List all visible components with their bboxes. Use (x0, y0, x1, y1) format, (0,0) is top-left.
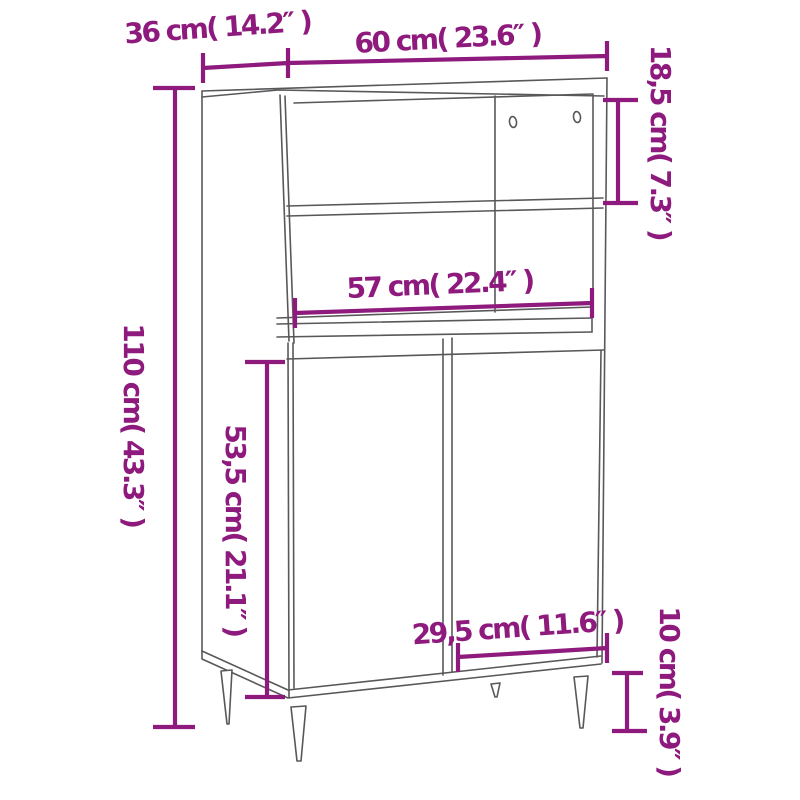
middle-shelf-top-edge (287, 198, 603, 206)
dimension-top-depth: 36 cm( 14.2″ ) (123, 5, 312, 83)
cabinet-front-left-edge (280, 95, 289, 341)
left-door-left-edge (293, 343, 294, 688)
dimension-total-height: 110 cm( 43.3″ ) (117, 88, 195, 727)
dimension-line (603, 100, 638, 203)
dimension-label-inner-width: 57 cm( 22.4″ ) (346, 264, 534, 305)
cabinet-front-left-lower-edge (288, 343, 289, 697)
dimension-label-door-height: 53,5 cm( 21.1″ ) (219, 424, 252, 636)
shelf-board-front-top-edge (277, 318, 592, 324)
dimension-open-shelf-height: 18,5 cm( 7.3″ ) (603, 45, 677, 240)
dimension-label-top-depth: 36 cm( 14.2″ ) (123, 5, 312, 51)
dimension-label-total-height: 110 cm( 43.3″ ) (117, 323, 150, 527)
middle-shelf-bottom-edge (287, 208, 603, 216)
cabinet-leg-back-left (221, 670, 232, 724)
door-top-edge (287, 350, 604, 359)
cabinet-front-left-inner-edge (285, 96, 294, 343)
dimension-line (612, 673, 647, 731)
cabinet-leg-front-left (291, 706, 306, 761)
dimension-label-top-width: 60 cm( 23.6″ ) (354, 17, 542, 60)
cabinet-right-edge (602, 78, 607, 663)
dimension-label-open-shelf-height: 18,5 cm( 7.3″ ) (644, 45, 677, 240)
back-panel-hole (509, 116, 517, 128)
dimension-line (153, 88, 195, 727)
dimension-line (203, 48, 288, 83)
cabinet-leg-front-right (574, 676, 588, 728)
cabinet-dimension-diagram: 36 cm( 14.2″ ) 60 cm( 23.6″ ) 110 cm( 43… (0, 0, 800, 800)
dimension-top-width: 60 cm( 23.6″ ) (288, 17, 607, 71)
dimension-door-height: 53,5 cm( 21.1″ ) (219, 362, 285, 697)
cabinet-leg-back-right (491, 683, 500, 697)
cabinet-outline (202, 78, 607, 761)
back-panel-hole (573, 111, 581, 123)
compartment-ceiling-edge (294, 94, 593, 103)
cabinet-top-back-edge (202, 78, 607, 91)
shelf-board-front-bottom-edge (277, 332, 592, 337)
dimension-label-leg-height: 10 cm( 3.9″ ) (653, 606, 686, 776)
dimension-diagram-page: 36 cm( 14.2″ ) 60 cm( 23.6″ ) 110 cm( 43… (0, 0, 800, 800)
